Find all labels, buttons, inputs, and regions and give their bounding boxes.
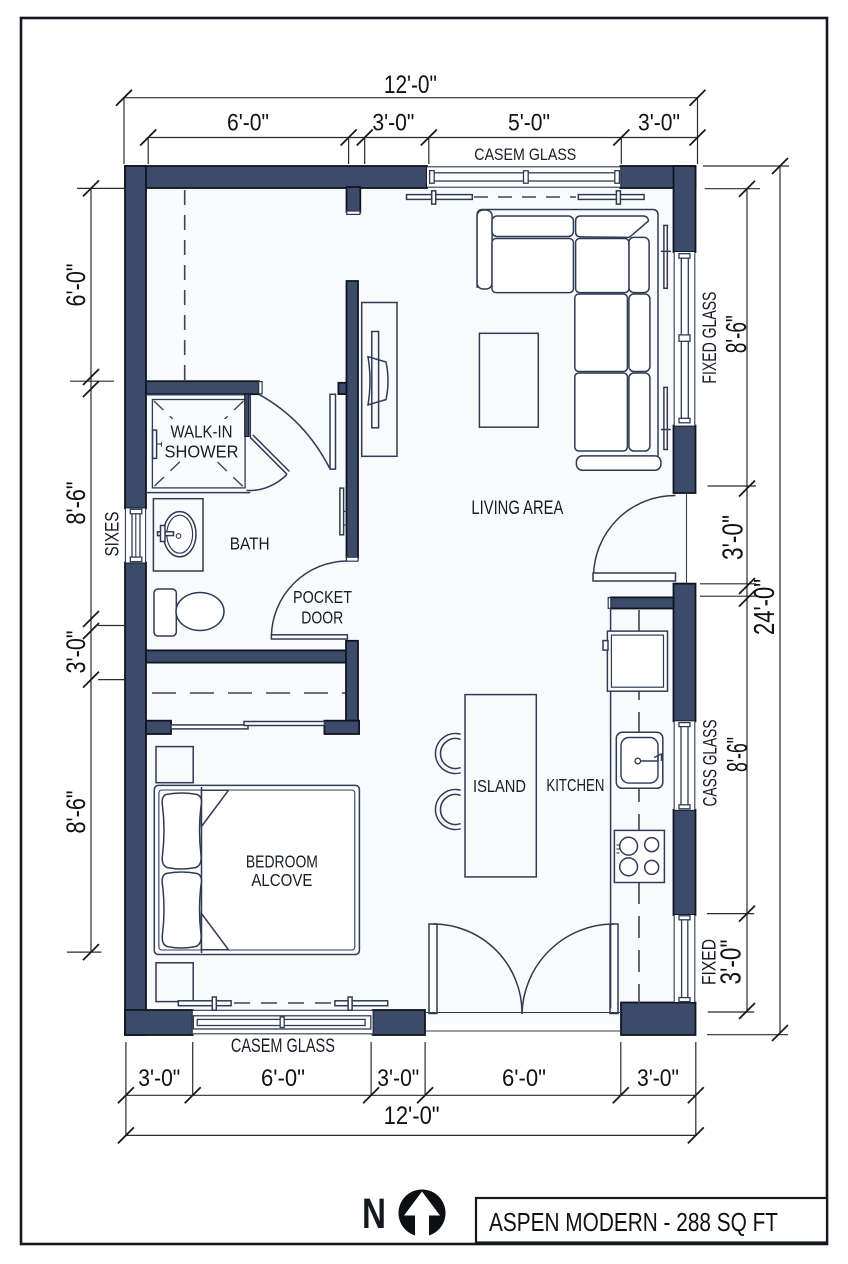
svg-text:6'-0": 6'-0" [61,264,91,307]
svg-text:KITCHEN: KITCHEN [546,775,604,795]
svg-text:5'-0": 5'-0" [508,111,550,137]
svg-text:3'-0": 3'-0" [637,1066,679,1092]
svg-text:8'-6": 8'-6" [721,315,753,353]
svg-text:3'-0": 3'-0" [718,515,750,560]
svg-text:CASEM GLASS: CASEM GLASS [474,145,576,164]
svg-text:12'-0": 12'-0" [384,1102,440,1130]
svg-text:WALK-IN: WALK-IN [171,422,233,442]
svg-text:SHOWER: SHOWER [165,441,239,461]
svg-text:24'-0": 24'-0" [749,579,781,635]
svg-text:ALCOVE: ALCOVE [251,870,312,890]
svg-text:6'-0": 6'-0" [227,111,269,137]
svg-text:N: N [362,1190,386,1238]
svg-text:8'-6": 8'-6" [722,737,754,772]
svg-text:3'-0": 3'-0" [372,111,414,137]
svg-text:POCKET: POCKET [293,587,352,607]
svg-text:ASPEN MODERN - 288 SQ FT: ASPEN MODERN - 288 SQ FT [489,1207,778,1237]
svg-text:8'-6": 8'-6" [61,791,91,834]
svg-text:DOOR: DOOR [301,607,343,627]
svg-text:ISLAND: ISLAND [473,776,526,796]
svg-text:FIXED GLASS: FIXED GLASS [699,292,721,384]
svg-text:CASS GLASS: CASS GLASS [700,720,722,807]
svg-text:3'-0": 3'-0" [377,1066,419,1092]
svg-text:3'-0": 3'-0" [716,940,748,985]
svg-text:6'-0": 6'-0" [502,1066,546,1092]
svg-text:3'-0": 3'-0" [638,111,680,137]
svg-text:12'-0": 12'-0" [384,71,437,99]
svg-text:6'-0": 6'-0" [261,1066,305,1092]
svg-text:3'-0": 3'-0" [138,1066,180,1092]
svg-text:BEDROOM: BEDROOM [246,852,318,872]
svg-text:3'-0": 3'-0" [61,631,91,674]
svg-text:8'-6": 8'-6" [61,482,91,525]
svg-text:LIVING AREA: LIVING AREA [471,497,563,519]
svg-text:BATH: BATH [230,534,270,554]
svg-text:CASEM GLASS: CASEM GLASS [231,1035,335,1057]
svg-text:SIXES: SIXES [102,512,124,557]
